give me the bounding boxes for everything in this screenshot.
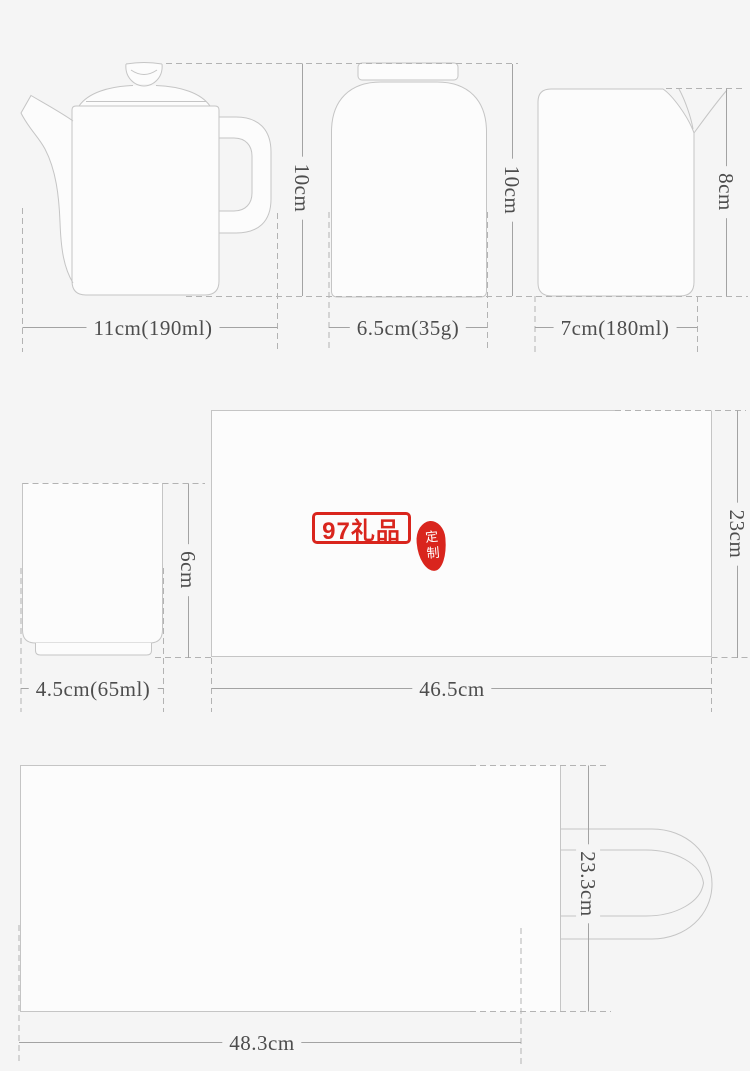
- canister-drawing: [332, 63, 487, 297]
- teapot-body: [72, 106, 219, 295]
- teapot-width-label: 11cm(190ml): [86, 316, 219, 340]
- bag-width-label: 48.3cm: [222, 1031, 301, 1055]
- teapot-handle-hole: [219, 138, 252, 211]
- teapot-drawing: [21, 63, 271, 296]
- cup-width-label: 7cm(180ml): [554, 316, 677, 340]
- bag-drawing: [21, 766, 713, 1012]
- small-cup-drawing: [23, 483, 163, 655]
- bag-fill: [21, 766, 561, 1012]
- cup-body: [538, 89, 694, 296]
- teapot-height-label: 10cm: [290, 157, 314, 220]
- small-cup-width-label: 4.5cm(65ml): [29, 677, 158, 701]
- tray-drawing: [212, 411, 712, 657]
- canister-height-label: 10cm: [500, 159, 524, 222]
- small-cup-fill: [23, 483, 163, 643]
- cup-drawing: [538, 89, 727, 296]
- cup-height-label: 8cm: [714, 166, 738, 218]
- canister-lid: [358, 63, 458, 80]
- bag-height-label: 23.3cm: [576, 844, 600, 923]
- teapot-dome: [79, 86, 210, 107]
- teapot-spout-fill: [21, 96, 73, 284]
- tray-fill: [212, 411, 712, 657]
- product-dimension-diagram: 11cm(190ml) 10cm 6.5cm(35g) 10cm 7cm(180…: [0, 0, 750, 1071]
- brand-logo-text: 97礼品: [322, 511, 401, 546]
- tray-width-label: 46.5cm: [412, 677, 491, 701]
- brand-seal-text: 定制: [424, 529, 440, 562]
- tray-height-label: 23cm: [725, 503, 749, 566]
- canister-body: [332, 82, 487, 297]
- small-cup-foot-fill: [36, 643, 152, 655]
- canister-width-label: 6.5cm(35g): [350, 316, 466, 340]
- small-cup-height-label: 6cm: [176, 544, 200, 596]
- brand-logo-box: 97礼品: [312, 512, 411, 544]
